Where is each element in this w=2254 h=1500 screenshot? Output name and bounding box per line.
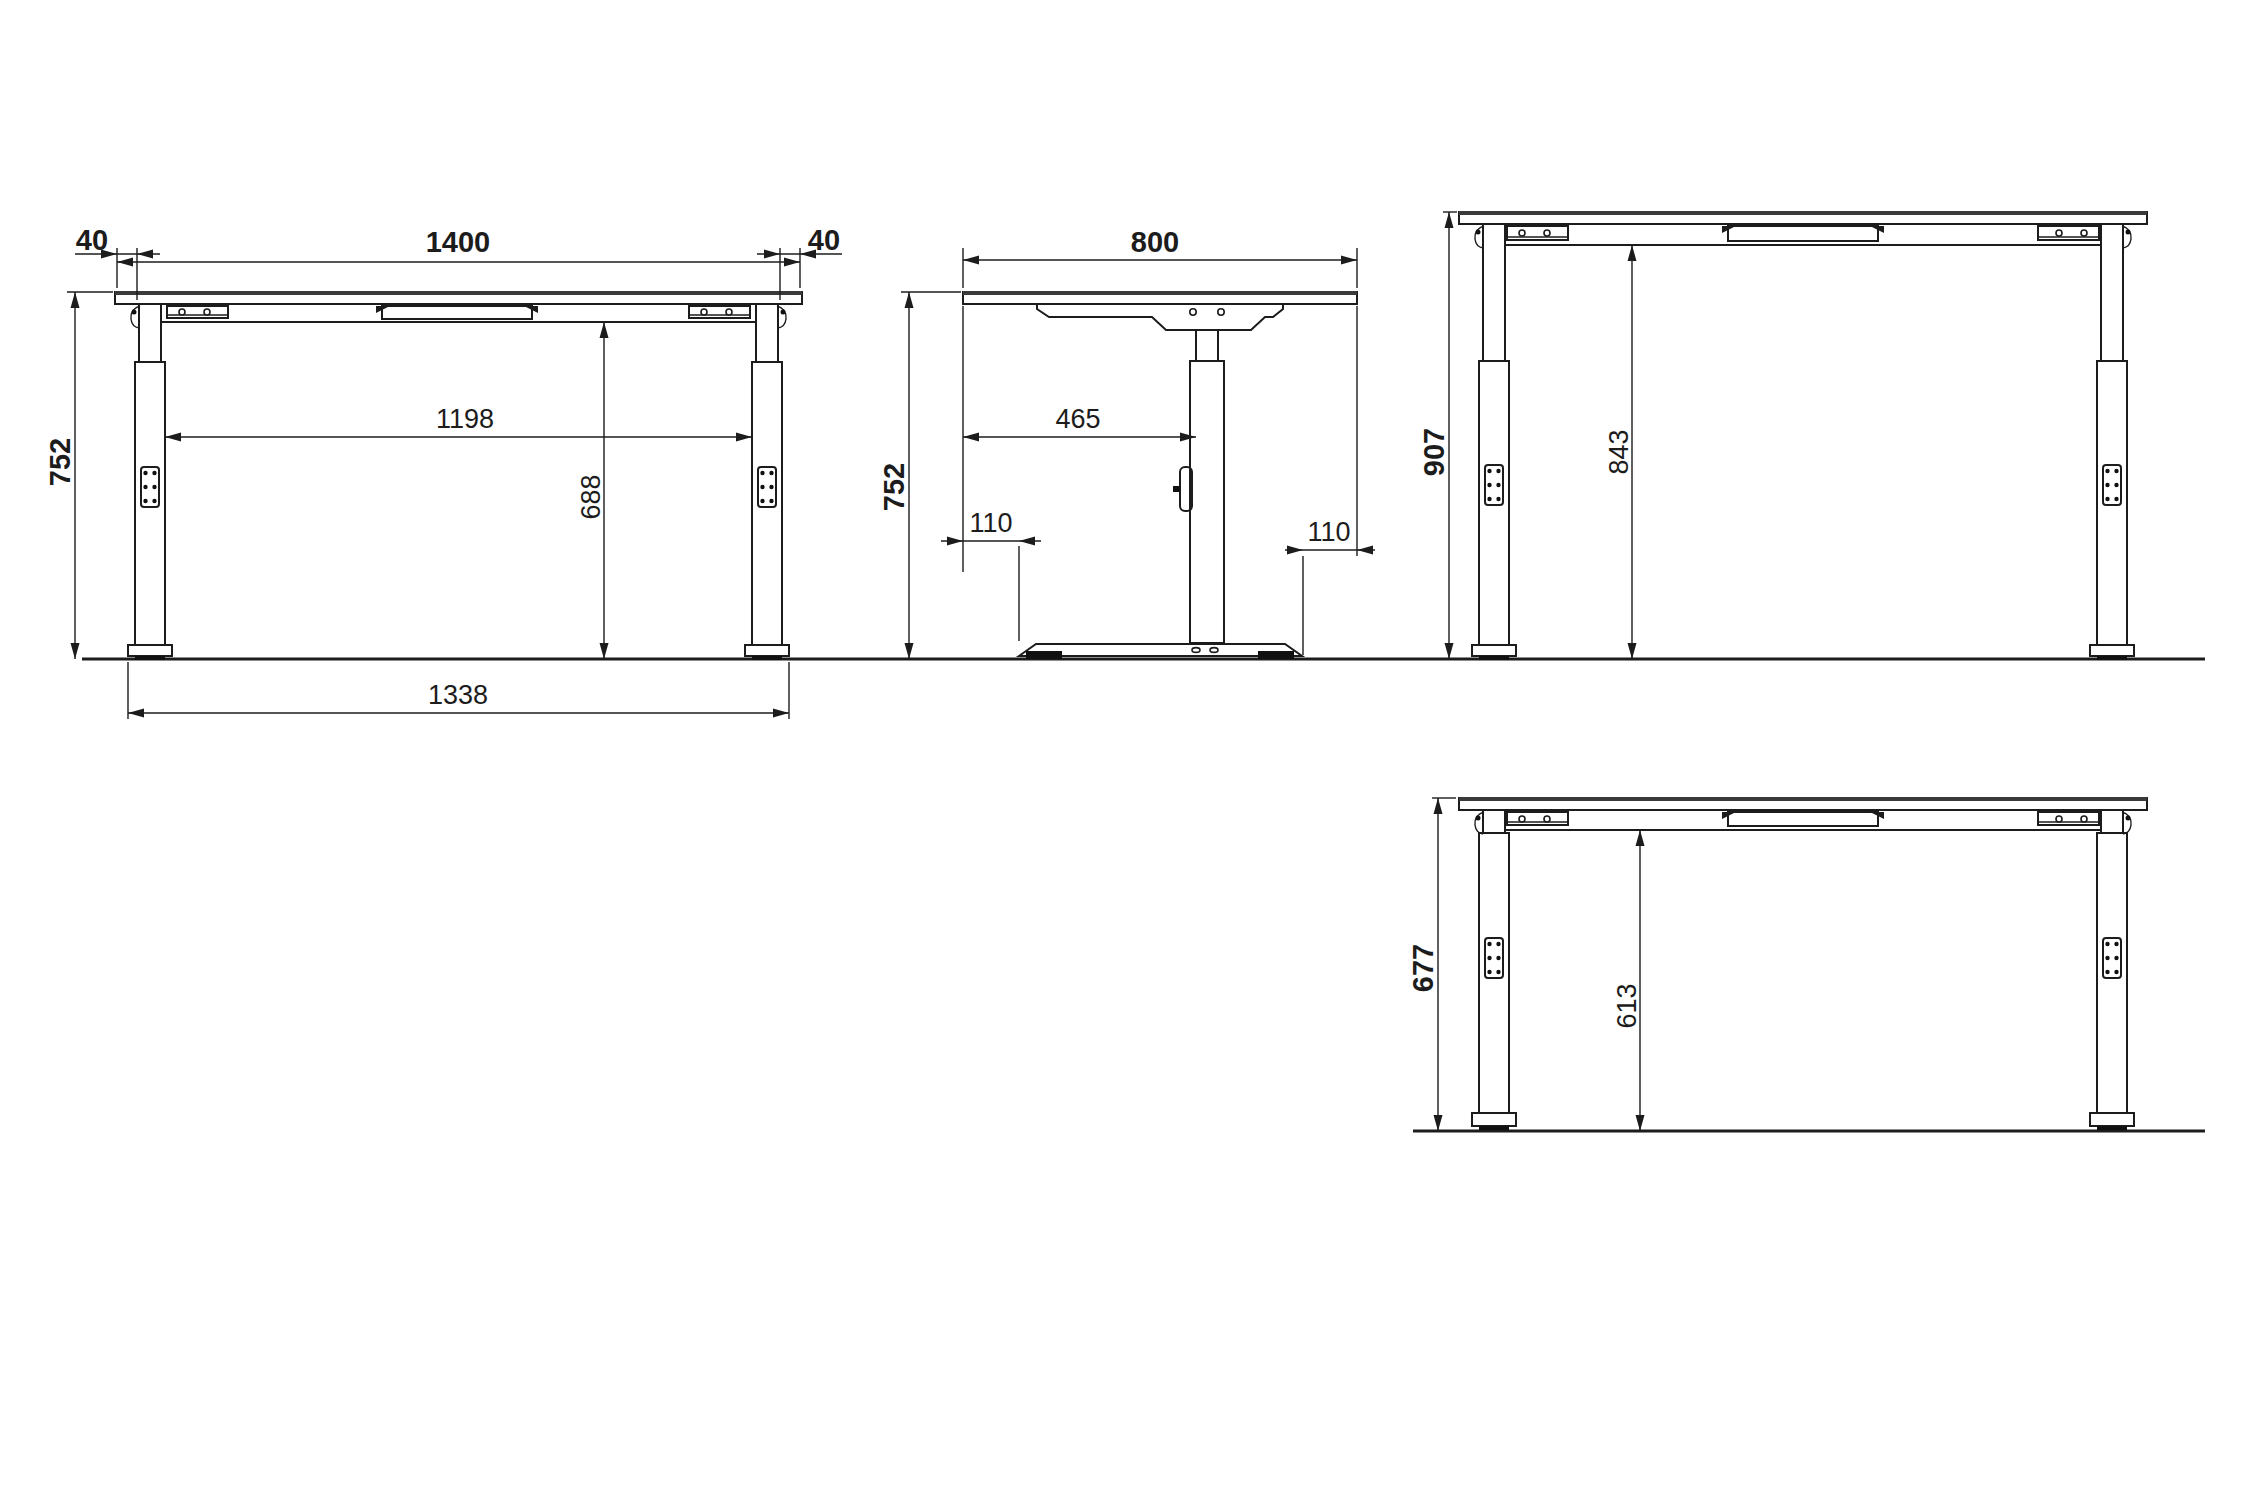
dimensions-front-lowered: 677 613 — [1407, 798, 1645, 1131]
leg-left-foot — [128, 645, 172, 656]
dim-clear-height-mid: 688 — [576, 474, 606, 519]
screw-hole — [1519, 816, 1525, 822]
leg-left-upper-tube — [139, 304, 161, 362]
leg-left-foot — [1472, 645, 1516, 656]
bracket-left — [1507, 812, 1568, 825]
screw-hole — [179, 309, 185, 315]
hook-pin — [1476, 816, 1481, 821]
dim-overhang-left: 40 — [76, 224, 108, 256]
hook-pin — [1476, 230, 1481, 235]
dimensions-front-raised: 907 843 — [1418, 212, 1637, 659]
dim-depth: 800 — [1131, 226, 1179, 258]
dim-height-side: 752 — [878, 463, 910, 511]
bracket-right — [689, 306, 750, 318]
frame-rail-overlap — [1728, 226, 1878, 241]
screw-hole — [1218, 309, 1224, 315]
dim-top-to-column: 465 — [1055, 404, 1100, 434]
leg-left-upper-tube — [1483, 224, 1505, 361]
dim-height-mid: 752 — [44, 438, 76, 486]
leg-left-lower-tube — [1479, 833, 1509, 1113]
leg-right-upper-tube — [2101, 810, 2123, 833]
screw-hole — [1519, 230, 1525, 236]
leg-right-foot-pad — [2097, 656, 2127, 660]
screw-hole — [2081, 816, 2087, 822]
dim-base-width: 1338 — [428, 680, 488, 710]
dim-overhang-right: 40 — [808, 224, 840, 256]
front-view-raised: 907 843 — [1418, 212, 2147, 660]
dim-clear-height-lowered: 613 — [1612, 983, 1642, 1028]
hook-pin — [2126, 816, 2131, 821]
column-top-bracket — [1037, 304, 1283, 330]
dim-top-width: 1400 — [426, 226, 491, 258]
dim-height-raised: 907 — [1418, 428, 1450, 476]
dim-base-inset-right: 110 — [1307, 517, 1350, 547]
screw-hole — [1190, 309, 1196, 315]
hook-pin — [781, 310, 786, 315]
frame-rail-overlap — [382, 306, 532, 319]
column-upper-tube — [1196, 330, 1218, 361]
hook-pin — [132, 310, 137, 315]
leg-left-foot-pad — [1479, 1126, 1509, 1130]
leg-right-upper-tube — [756, 304, 778, 362]
screw-hole — [2056, 816, 2062, 822]
leg-right-lower-tube — [752, 362, 782, 645]
frame-rail-overlap — [1728, 812, 1878, 826]
leg-right-foot-pad — [752, 656, 782, 660]
dim-clear-width: 1198 — [436, 404, 494, 434]
dim-height-lowered: 677 — [1407, 944, 1439, 992]
leg-right-foot — [745, 645, 789, 656]
dim-clear-height-raised: 843 — [1604, 429, 1634, 474]
base-pad-front — [1026, 651, 1062, 659]
leg-left-lower-tube — [1479, 361, 1509, 645]
leg-right-foot — [2090, 645, 2134, 656]
screw-hole — [726, 309, 732, 315]
leg-right-lower-tube — [2097, 833, 2127, 1113]
leg-left-foot-pad — [1479, 656, 1509, 660]
leg-left-foot-pad — [135, 656, 165, 660]
cable-clip-tab — [1173, 486, 1180, 492]
screw-hole — [204, 309, 210, 315]
leg-left-upper-tube — [1483, 810, 1505, 833]
desk-dimension-drawing: 40 1400 40 752 1198 688 1338 — [0, 0, 2254, 1500]
leg-left-foot — [1472, 1113, 1516, 1126]
front-view-mid: 40 1400 40 752 1198 688 1338 — [44, 224, 842, 719]
leg-right-foot — [2090, 1113, 2134, 1126]
leg-right-foot-pad — [2097, 1126, 2127, 1130]
leg-right-upper-tube — [2101, 224, 2123, 361]
bracket-right — [2038, 812, 2099, 825]
front-view-lowered: 677 613 — [1407, 798, 2147, 1131]
base-slot — [1210, 648, 1218, 653]
bracket-left — [167, 306, 228, 318]
screw-hole — [1544, 230, 1550, 236]
screw-hole — [1544, 816, 1550, 822]
bracket-left — [1507, 226, 1568, 240]
bracket-right — [2038, 226, 2099, 240]
column-lower-tube — [1190, 361, 1224, 643]
leg-right-lower-tube — [2097, 361, 2127, 645]
screw-hole — [2081, 230, 2087, 236]
base-slot — [1192, 648, 1200, 653]
dim-base-inset-left: 110 — [969, 508, 1012, 538]
technical-drawing-page: { "views": { "front_mid": { "overhang_le… — [0, 0, 2254, 1500]
screw-hole — [701, 309, 707, 315]
side-view: 800 752 465 110 110 — [878, 226, 1375, 659]
screw-hole — [2056, 230, 2062, 236]
hook-pin — [2126, 230, 2131, 235]
base-pad-rear — [1258, 651, 1294, 659]
dimensions-side: 800 752 465 110 110 — [878, 226, 1375, 659]
leg-left-lower-tube — [135, 362, 165, 645]
